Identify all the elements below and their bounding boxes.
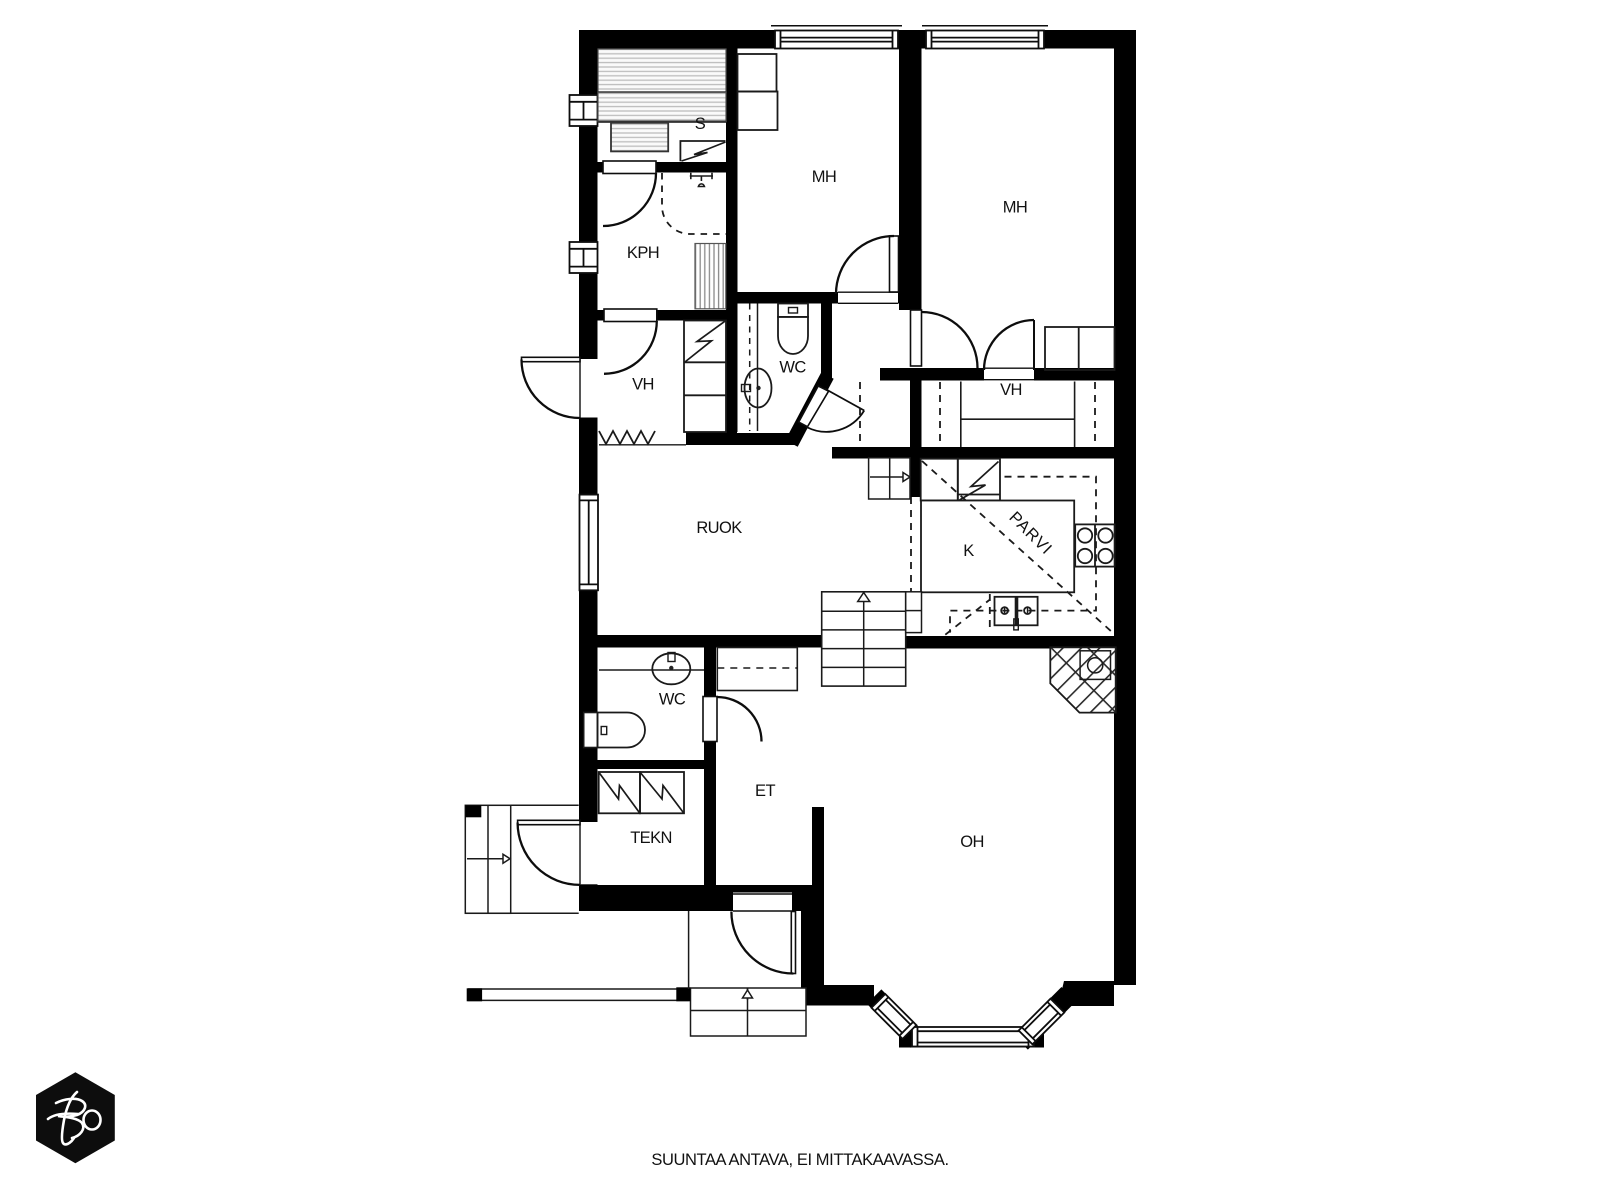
svg-text:RUOK: RUOK [696, 519, 742, 537]
svg-text:VH: VH [1000, 381, 1022, 399]
svg-text:S: S [695, 115, 706, 133]
svg-text:SUUNTAA ANTAVA, EI MITTAKAAVAS: SUUNTAA ANTAVA, EI MITTAKAAVASSA. [651, 1151, 948, 1169]
svg-text:MH: MH [1003, 199, 1027, 217]
svg-text:KPH: KPH [627, 244, 659, 262]
svg-text:OH: OH [960, 833, 984, 851]
svg-text:MH: MH [812, 168, 836, 186]
svg-text:WC: WC [659, 691, 686, 709]
svg-text:TEKN: TEKN [630, 829, 672, 847]
svg-text:WC: WC [779, 359, 806, 377]
svg-text:ET: ET [755, 782, 775, 800]
svg-text:K: K [963, 542, 974, 560]
svg-text:VH: VH [632, 376, 654, 394]
